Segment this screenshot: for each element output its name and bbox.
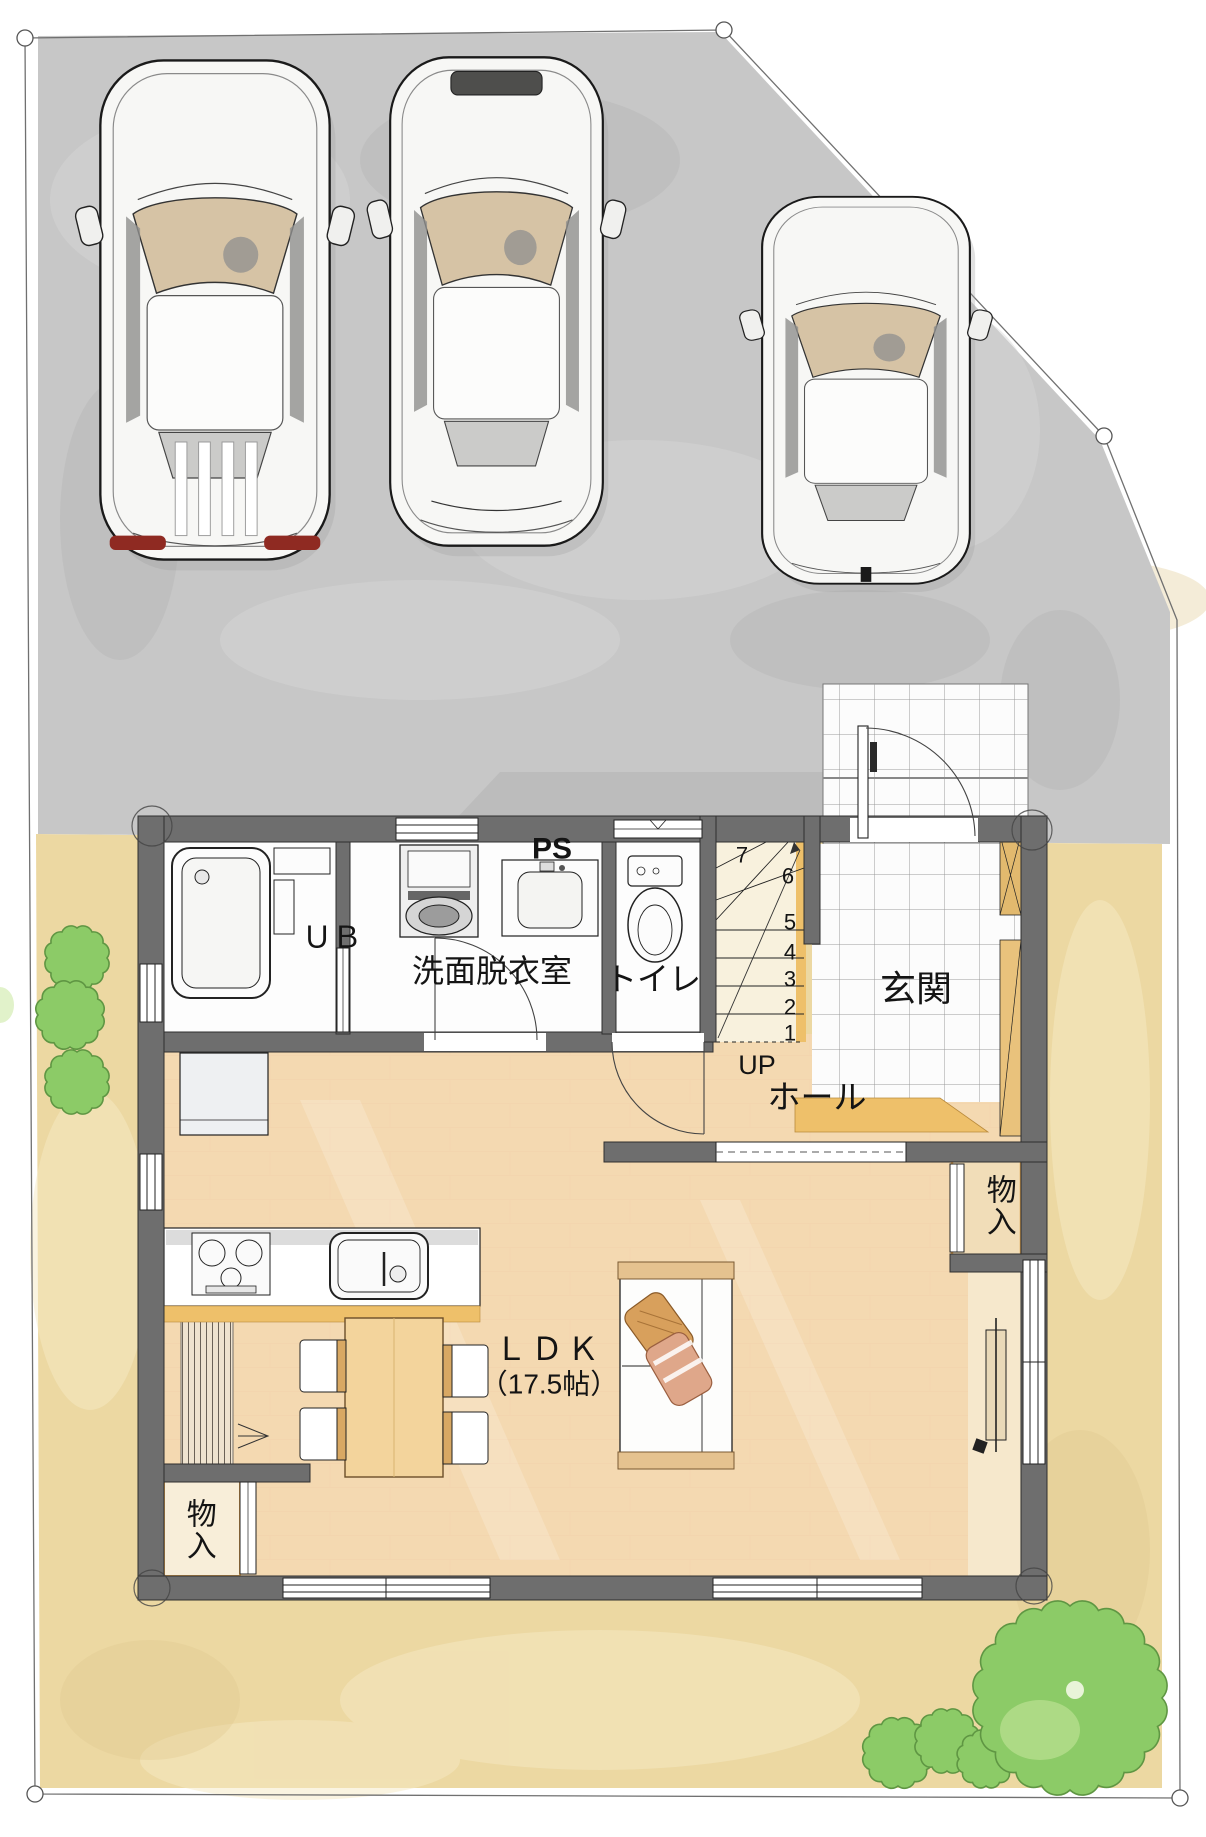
bush — [36, 981, 104, 1049]
sofa — [618, 1262, 734, 1469]
kitchen-counter — [164, 1228, 480, 1322]
washroom-window — [396, 818, 478, 840]
stair-number-3: 3 — [784, 967, 796, 990]
stair-number-5: 5 — [784, 910, 796, 933]
house — [132, 726, 1052, 1606]
sunroof — [451, 71, 542, 94]
bathtub — [172, 848, 270, 998]
car-compact — [738, 197, 994, 592]
ub-door — [337, 948, 349, 1032]
ldk-window-right — [713, 1578, 922, 1598]
room-label-storage-right: 物入 — [982, 1174, 1014, 1238]
toilet-door-gap — [612, 1033, 704, 1051]
bush — [45, 1050, 109, 1114]
room-label-toilet: トイレ — [605, 963, 701, 997]
vanity-sink — [502, 860, 598, 936]
floor-plan-page: ＵＢ 洗面脱衣室 PS トイレ 玄関 UP ホール 物入 ＬＤＫ （17.5帖）… — [0, 0, 1206, 1837]
room-label-ldk: ＬＤＫ — [495, 1333, 603, 1367]
washroom-door-gap — [424, 1033, 546, 1051]
room-label-washroom: 洗面脱衣室 — [412, 955, 572, 989]
washing-machine — [400, 845, 478, 937]
car-suv — [74, 60, 356, 570]
car-minivan — [366, 57, 628, 556]
room-label-storage-left: 物入 — [182, 1498, 214, 1562]
room-label-entrance: 玄関 — [880, 970, 952, 1008]
large-tree — [973, 1601, 1167, 1795]
storage-right-door — [950, 1164, 964, 1252]
storage-left-door — [240, 1482, 256, 1574]
kitchen-sink — [330, 1233, 428, 1299]
room-label-ldk-size: （17.5帖） — [480, 1369, 619, 1398]
bath-counter — [274, 880, 294, 934]
parked-cars — [74, 57, 994, 592]
room-label-unit-bath: ＵＢ — [302, 922, 362, 954]
toilet — [628, 856, 682, 962]
counter-window — [1023, 1260, 1045, 1464]
hall-opening — [716, 1142, 906, 1162]
floor-plan-canvas — [0, 0, 1206, 1837]
rear-antenna — [861, 567, 872, 582]
stair-number-1: 1 — [784, 1021, 796, 1044]
stair-number-6: 6 — [782, 864, 794, 887]
bath-bench — [274, 848, 330, 874]
toilet-window — [614, 820, 702, 838]
ldk-window-left — [283, 1578, 490, 1598]
stair-number-2: 2 — [784, 995, 796, 1018]
stair-number-7: 7 — [736, 843, 748, 866]
ub-window — [140, 964, 162, 1022]
room-label-hall: ホール — [768, 1081, 867, 1116]
porch-post — [870, 742, 877, 772]
kitchen-window — [140, 1154, 162, 1210]
stove — [192, 1233, 270, 1295]
room-label-pipe-space: PS — [532, 833, 572, 865]
shoe-cabinet — [1000, 835, 1021, 1136]
refrigerator — [180, 1053, 268, 1135]
stairs-up-label: UP — [738, 1051, 776, 1079]
stair-number-4: 4 — [784, 940, 796, 963]
